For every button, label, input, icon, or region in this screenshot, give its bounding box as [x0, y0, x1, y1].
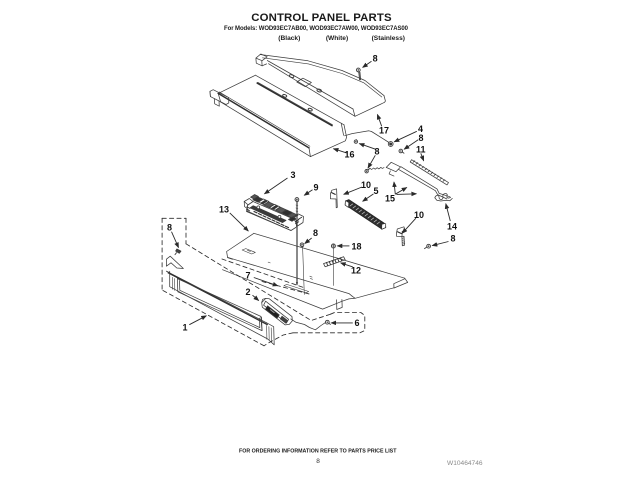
svg-text:W10464746: W10464746 [447, 460, 483, 467]
svg-text:6: 6 [355, 318, 360, 328]
svg-text:10: 10 [414, 210, 424, 220]
svg-text:CONTROL PANEL PARTS: CONTROL PANEL PARTS [251, 12, 392, 24]
svg-text:7: 7 [246, 270, 251, 280]
svg-text:5: 5 [374, 186, 379, 196]
svg-text:8: 8 [316, 458, 320, 465]
svg-text:8: 8 [167, 223, 172, 233]
svg-text:16: 16 [345, 150, 355, 160]
svg-text:9: 9 [314, 183, 319, 193]
svg-text:FOR ORDERING INFORMATION REFER: FOR ORDERING INFORMATION REFER TO PARTS … [239, 449, 397, 455]
svg-text:For Models: WOD93EC7AB00, WOD9: For Models: WOD93EC7AB00, WOD93EC7AW00, … [224, 26, 409, 32]
svg-text:13: 13 [219, 204, 229, 214]
svg-text:(White): (White) [326, 35, 348, 42]
svg-text:1: 1 [183, 322, 188, 332]
svg-text:14: 14 [447, 221, 457, 231]
svg-text:3: 3 [291, 170, 296, 180]
svg-text:8: 8 [451, 234, 456, 244]
svg-text:18: 18 [352, 242, 362, 252]
svg-text:(Stainless): (Stainless) [372, 35, 405, 42]
svg-text:8: 8 [375, 147, 380, 157]
svg-text:2: 2 [246, 287, 251, 297]
svg-text:10: 10 [361, 180, 371, 190]
svg-text:12: 12 [351, 266, 361, 276]
svg-text:8: 8 [373, 54, 378, 64]
svg-text:8: 8 [313, 228, 318, 238]
svg-text:11: 11 [416, 145, 426, 155]
svg-text:8: 8 [419, 133, 424, 143]
svg-text:15: 15 [385, 193, 395, 203]
svg-text:(Black): (Black) [278, 35, 300, 42]
svg-text:17: 17 [379, 125, 389, 135]
